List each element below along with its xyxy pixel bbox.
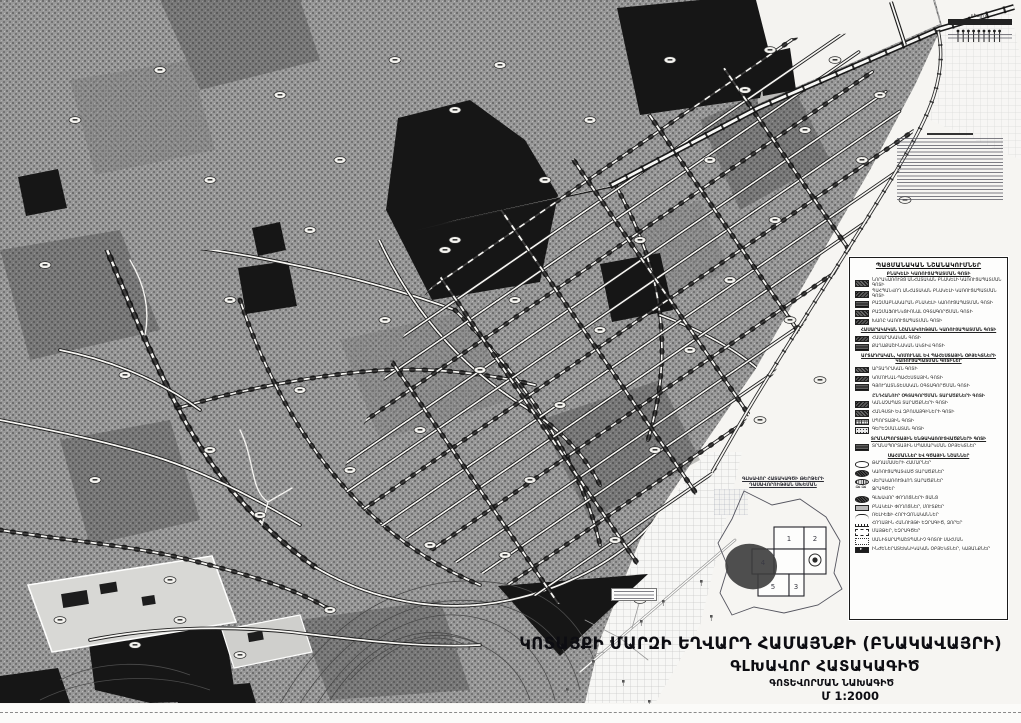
legend-item-label: ԳԼԽԱՎՈՐ ՓՈՂՈՑՆԵՐԻ ՑԱՆՑ [872, 497, 1004, 502]
legend-swatch-icon [855, 470, 869, 477]
legend-section-header: ՀԱՍԱՐԱԿԱԿԱՆ ՆՇԱՆԱԿՈՒԹՅԱՆ ԿԱՌՈՒՑԱՊԱՏՄԱՆ Գ… [855, 328, 1002, 334]
legend-row: ԿԱՌՈՒՑԱՊԱՏՎԱԾ ՏԱՐԱԾՔՆԵՐ [855, 470, 1004, 477]
inset-map: 1 2 3 4 5 [714, 489, 852, 619]
legend-row: ԹԱՂԱՄԱՍԵՐԻ ՀԱՄԱՐՆԵՐ [855, 461, 1004, 468]
legend-row: ՎԵՐԱԿԱՌՈՒՑՎՈՂ ՏԱՐԱԾՔՆԵՐ [855, 479, 1004, 486]
legend-item-label: ՀԱՍԱՐԱԿԱԿԱՆ ԳՈՏԻ [872, 337, 1004, 342]
legend-swatch-icon [855, 496, 869, 503]
legend-swatch-icon [855, 444, 869, 451]
legend-item-label: ՀԱՆԳՍՏԻ ԵՎ ԶԲՈՍԱՅԳԻՆԵՐԻ ԳՈՏԻ [872, 411, 1004, 416]
legend-swatch-icon [855, 461, 869, 468]
legend-item-label: ԿԱՌՈՒՑԱՊԱՏՎԱԾ ՏԱՐԱԾՔՆԵՐ [872, 471, 1004, 476]
legend-section-header: ԸՆԴՀԱՆՈՒՐ ՕԳՏԱԳՈՐԾՄԱՆ ՏԱՐԱԾՔՆԵՐԻ ԳՈՏԻ [855, 394, 1002, 400]
legend-subtitle: ԲՆԱԿԵԼԻ ԿԱՌՈՒՑԱՊԱՏՄԱՆ ԳՈՏԻ [853, 272, 1004, 277]
legend-swatch-icon [855, 401, 869, 408]
legend-row: ՄԱՅԹԵՐ, ԵԶՐԱԳԾԵՐ [855, 529, 1004, 536]
legend-row: ՆՈՐԱԿԱՌՈՒՅՑ ԱՆՀԱՏԱԿԱՆ ԲՆԱԿԵԼԻ ԿԱՌՈՒՑԱՊԱՏ… [855, 279, 1004, 288]
map-title-line2: ԳԼԽԱՎՈՐ ՀԱՏԱԿԱԳԻԾ [730, 657, 920, 675]
legend-item-label: ԿԱՆԱՉԱՊԱՏ ՏԱՐԱԾՔՆԵՐԻ ԳՈՏԻ [872, 402, 1004, 407]
legend-swatch-icon [855, 376, 869, 383]
legend-row: ՔԱՂԱՔԱՇԻՆԱԿԱՆ ԱԿՏԻՎ ԳՈՏԻ [855, 344, 1004, 351]
legend-row: ՌԵԼԻԵՖԻ ՀՈՐԻԶՈՆԱԿԱՆՆԵՐ [855, 514, 1004, 519]
legend-swatch-icon [855, 419, 869, 426]
legend-item-label: ՍԱՆԻՏԱՐԱՊԱՇՏՊԱՆԻՉ ԳՈՏՈՒ ՍԱՀՄԱՆ [872, 539, 1004, 544]
legend-swatch-icon [855, 538, 869, 545]
legend-item-label: ԳԵՐԵԶՄԱՆԱՏԱՆ ԳՈՏԻ [872, 428, 1004, 433]
sheet-frame-line [0, 712, 1021, 713]
legend-swatch-icon [855, 344, 869, 351]
legend-swatch-icon [855, 487, 869, 494]
legend-row: ԻՆԺԵՆԵՐԱՏԵԽՆԻԿԱԿԱՆ ՕԲՅԵԿՏՆԵՐ, ԿԱՅԱՆՔՆԵՐ [855, 547, 1004, 554]
sheet-index-inset: ԳԼԽԱՎՈՐ ՀԱՏԱԿԱԳԾԻ ԹԵՐԹԵՐԻ ԴԱՍԱՎՈՐՈՒԹՅԱՆ … [714, 477, 852, 623]
legend-section-header: ՍԱՀՄԱՆՆԵՐ ԵՎ ԳԾԱՅԻՆ ՆՇԱՆՆԵՐ [855, 454, 1002, 460]
road-destination-label: դեպի ք. ՆՈՐ ՀԱՃՆ [948, 14, 1012, 40]
map-title-line1: ԿՈՏԱՅՔԻ ՄԱՐԶԻ ԵՂՎԱՐԴ ՀԱՄԱՅՆՔԻ (ԲՆԱԿԱՎԱՅՐ… [519, 634, 1002, 653]
legend-swatch-icon [855, 384, 869, 391]
legend-item-label: ՀՈՂԱՅԻՆ ՀԱՆՈՒՅԹԻ ԵԶՐԱԳԻԾ, ՁՈՐԵՐ [872, 522, 1004, 527]
legend-item-label: ԲՆԱԿԵԼԻ ՓՈՂՈՑՆԵՐ, ՄՈՒՏՔԵՐ [872, 506, 1004, 511]
legend-row: ԿՈՄՈՒՆԱԼ-ՊԱՀԵՍՏԱՅԻՆ ԳՈՏԻ [855, 376, 1004, 383]
bottom-margin [0, 704, 1021, 723]
map-scale: Մ 1:2000 [821, 689, 879, 703]
legend-row: ԿԱՆԱՉԱՊԱՏ ՏԱՐԱԾՔՆԵՐԻ ԳՈՏԻ [855, 401, 1004, 408]
legend-item-label: ԿՈՄՈՒՆԱԼ-ՊԱՀԵՍՏԱՅԻՆ ԳՈՏԻ [872, 377, 1004, 382]
legend-row: ՀԱՍԱՐԱԿԱԿԱՆ ԳՈՏԻ [855, 336, 1004, 343]
legend-section-header: ՏՐԱՆՍՊՈՐՏԱՅԻՆ ԵՆԹԱԿԱՌՈՒՑՎԱԾՔՆԵՐԻ ԳՈՏԻ [855, 437, 1002, 443]
legend-row: ԳԵՐԵԶՄԱՆԱՏԱՆ ԳՈՏԻ [855, 427, 1004, 434]
legend-swatch-icon [855, 505, 869, 512]
map-sheet: դեպի ք. ՆՈՐ ՀԱՃՆ ՊԱՅՄԱՆԱԿԱՆ ՆՇԱՆԱԿՈՒՄՆԵՐ… [0, 0, 1021, 723]
legend-swatch-icon [855, 427, 869, 434]
legend-item-label: ԹԱՂԱՄԱՍԵՐԻ ՀԱՄԱՐՆԵՐ [872, 462, 1004, 467]
legend-item-label: ՎԵՐԱԿԱՌՈՒՑՎՈՂ ՏԱՐԱԾՔՆԵՐ [872, 480, 1004, 485]
legend-item-label: ՏՐԱՆՍՊՈՐՏԱՅԻՆ ՍՊԱՍԱՐԿՄԱՆ ՕԲՅԵԿՏՆԵՐ [872, 445, 1004, 450]
legend-swatch-icon [855, 301, 869, 308]
legend-item-label: ԽԱՌԸ ԿԱՌՈՒՑԱՊԱՏՄԱՆ ԳՈՏԻ [872, 320, 1004, 325]
legend-item-label: ԲԱԶՄԱԲՆԱԿԱՐԱՆ ԲՆԱԿԵԼԻ ԿԱՌՈՒՑԱՊԱՏՄԱՆ ԳՈՏԻ [872, 302, 1004, 307]
legend-box: ՊԱՅՄԱՆԱԿԱՆ ՆՇԱՆԱԿՈՒՄՆԵՐ ԲՆԱԿԵԼԻ ԿԱՌՈՒՑԱՊ… [849, 257, 1008, 620]
legend-row: ՍՊՈՐՏԱՅԻՆ ԳՈՏԻ [855, 419, 1004, 426]
legend-item-label: ՍՊՈՐՏԱՅԻՆ ԳՈՏԻ [872, 420, 1004, 425]
legend-row: ՊԱՀՊԱՆՎՈՂ ԱՆՀԱՏԱԿԱՆ ԲՆԱԿԵԼԻ ԿԱՌՈՒՑԱՊԱՏՄԱ… [855, 290, 1004, 299]
legend-swatch-icon [855, 319, 869, 326]
notes-text-lines [897, 138, 1003, 200]
legend-swatch-icon [855, 280, 869, 287]
legend-item-label: ՆՈՐԱԿԱՌՈՒՅՑ ԱՆՀԱՏԱԿԱՆ ԲՆԱԿԵԼԻ ԿԱՌՈՒՑԱՊԱՏ… [872, 279, 1004, 288]
legend-row: ՏՐԱՆՍՊՈՐՏԱՅԻՆ ՍՊԱՍԱՐԿՄԱՆ ՕԲՅԵԿՏՆԵՐ [855, 444, 1004, 451]
sheet-number: 4 [761, 559, 766, 567]
sheet-number: 2 [813, 535, 817, 543]
legend-swatch-icon [855, 410, 869, 417]
legend-item-label: ԳՅՈՒՂԱՏՆՏԵՍԱԿԱՆ ՕԳՏԱԳՈՐԾՄԱՆ ԳՈՏԻ [872, 385, 1004, 390]
sheet-number: 3 [794, 583, 798, 591]
legend-swatch-icon [855, 367, 869, 374]
sheet-number: 1 [787, 535, 791, 543]
legend-swatch-icon [855, 291, 869, 298]
legend-item-label: ՊԱՀՊԱՆՎՈՂ ԱՆՀԱՏԱԿԱՆ ԲՆԱԿԵԼԻ ԿԱՌՈՒՑԱՊԱՏՄԱ… [872, 290, 1004, 299]
legend-row: ԱՐՏԱԴՐԱԿԱՆ ԳՈՏԻ [855, 367, 1004, 374]
legend-item-label: ԻՆԺԵՆԵՐԱՏԵԽՆԻԿԱԿԱՆ ՕԲՅԵԿՏՆԵՐ, ԿԱՅԱՆՔՆԵՐ [872, 548, 1004, 553]
map-title-line3: ԳՈՏԵՎՈՐՄԱՆ ՆԱԽԱԳԻԾ [769, 678, 894, 689]
legend-item-label: ԲԱԶՄԱՖՈՒՆԿՑԻՈՆԱԼ ՕԳՏԱԳՈՐԾՄԱՆ ԳՈՏԻ [872, 311, 1004, 316]
destination-name: ՆՈՐ ՀԱՃՆ [948, 19, 1012, 25]
legend-swatch-icon [855, 547, 869, 554]
legend-item-label: ՋՐԱԳԾԵՐ [872, 488, 1004, 493]
legend-item-label: ՄԱՅԹԵՐ, ԵԶՐԱԳԾԵՐ [872, 530, 1004, 535]
legend-row: ՋՐԱԳԾԵՐ [855, 487, 1004, 494]
legend-swatch-icon [855, 514, 869, 519]
legend-swatch-icon [855, 310, 869, 317]
notes-heading-line [927, 133, 973, 135]
legend-row: ԳԼԽԱՎՈՐ ՓՈՂՈՑՆԵՐԻ ՑԱՆՑ [855, 496, 1004, 503]
legend-item-label: ՌԵԼԻԵՖԻ ՀՈՐԻԶՈՆԱԿԱՆՆԵՐ [872, 514, 1004, 519]
field-label-box [611, 588, 657, 601]
legend-item-label: ՔԱՂԱՔԱՇԻՆԱԿԱՆ ԱԿՏԻՎ ԳՈՏԻ [872, 345, 1004, 350]
legend-title: ՊԱՅՄԱՆԱԿԱՆ ՆՇԱՆԱԿՈՒՄՆԵՐ [853, 262, 1004, 269]
legend-row: ԲԱԶՄԱԲՆԱԿԱՐԱՆ ԲՆԱԿԵԼԻ ԿԱՌՈՒՑԱՊԱՏՄԱՆ ԳՈՏԻ [855, 301, 1004, 308]
legend-row: ԲՆԱԿԵԼԻ ՓՈՂՈՑՆԵՐ, ՄՈՒՏՔԵՐ [855, 505, 1004, 512]
sheet-number: 5 [771, 583, 775, 591]
legend-items: ՆՈՐԱԿԱՌՈՒՅՑ ԱՆՀԱՏԱԿԱՆ ԲՆԱԿԵԼԻ ԿԱՌՈՒՑԱՊԱՏ… [853, 279, 1004, 553]
destination-note [948, 34, 1012, 40]
legend-row: ԲԱԶՄԱՖՈՒՆԿՑԻՈՆԱԼ ՕԳՏԱԳՈՐԾՄԱՆ ԳՈՏԻ [855, 310, 1004, 317]
legend-swatch-icon [855, 521, 869, 528]
legend-row: ԽԱՌԸ ԿԱՌՈՒՑԱՊԱՏՄԱՆ ԳՈՏԻ [855, 319, 1004, 326]
legend-section-header: ԱՐՏԱԴՐԱԿԱՆ, ԿՈՄՈՒՆԱԼ ԵՎ ՊԱՀԵՍՏԱՅԻՆ ՕԲՅԵԿ… [855, 354, 1002, 365]
settlement-footprint [725, 544, 777, 590]
legend-row: ՀԱՆԳՍՏԻ ԵՎ ԶԲՈՍԱՅԳԻՆԵՐԻ ԳՈՏԻ [855, 410, 1004, 417]
legend-swatch-icon [855, 529, 869, 536]
notes-block [897, 133, 1003, 207]
legend-swatch-icon [855, 336, 869, 343]
legend-row: ՀՈՂԱՅԻՆ ՀԱՆՈՒՅԹԻ ԵԶՐԱԳԻԾ, ՁՈՐԵՐ [855, 521, 1004, 528]
legend-row: ՍԱՆԻՏԱՐԱՊԱՇՏՊԱՆԻՉ ԳՈՏՈՒ ՍԱՀՄԱՆ [855, 538, 1004, 545]
legend-item-label: ԱՐՏԱԴՐԱԿԱՆ ԳՈՏԻ [872, 368, 1004, 373]
field-label-lines [614, 591, 654, 599]
legend-row: ԳՅՈՒՂԱՏՆՏԵՍԱԿԱՆ ՕԳՏԱԳՈՐԾՄԱՆ ԳՈՏԻ [855, 384, 1004, 391]
